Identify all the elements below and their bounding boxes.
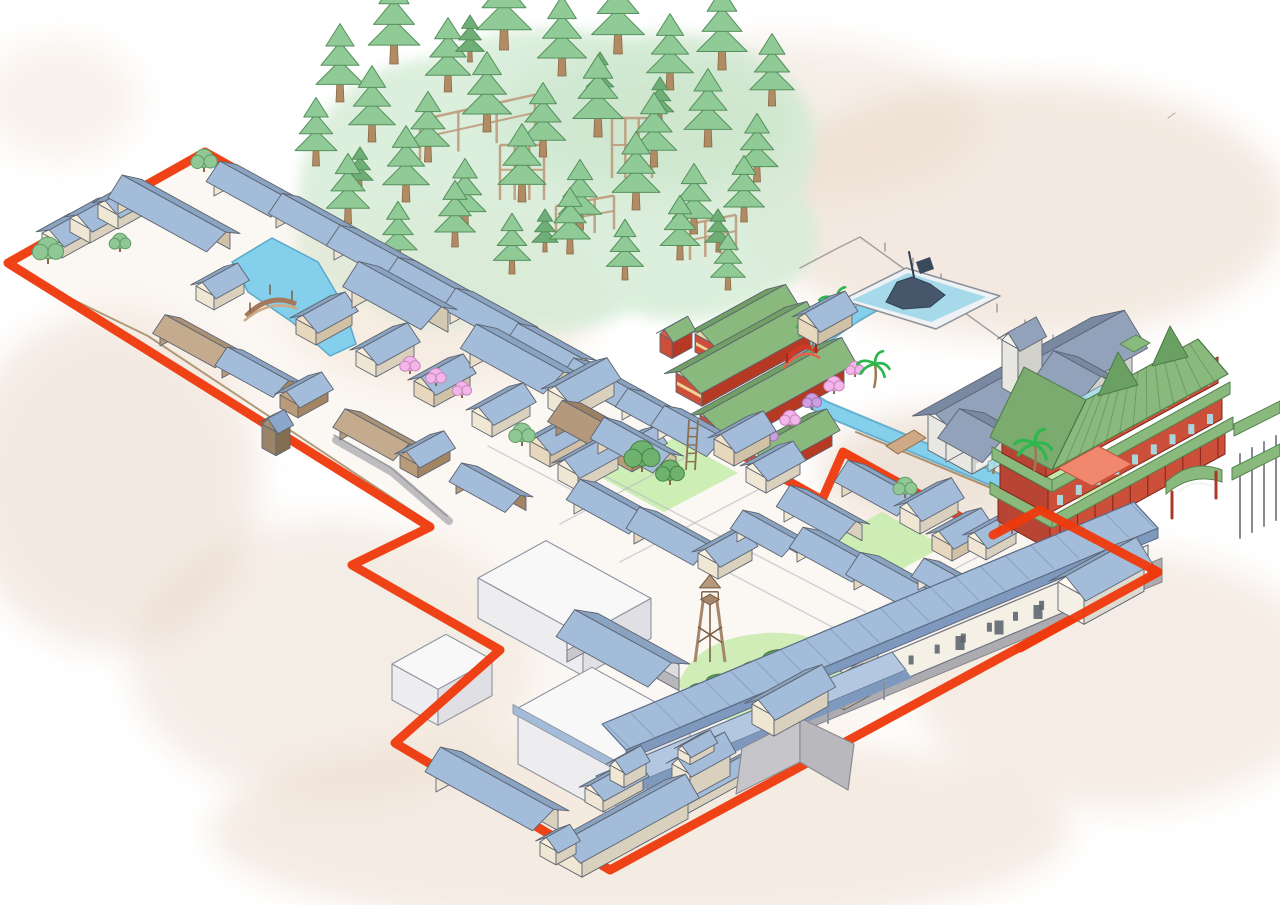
wash (0, 40, 140, 160)
palm-fronds (857, 351, 889, 377)
map-canvas: Hand-drawn isometric watercolor map of a… (0, 0, 1280, 905)
studio-park-illustrated-map: Hand-drawn isometric watercolor map of a… (0, 0, 1280, 905)
annex-roof (1234, 401, 1280, 436)
porch-arch (1178, 483, 1212, 492)
red-gate (656, 316, 695, 358)
conifer-tree (368, 0, 420, 64)
palm-tree (857, 351, 889, 388)
